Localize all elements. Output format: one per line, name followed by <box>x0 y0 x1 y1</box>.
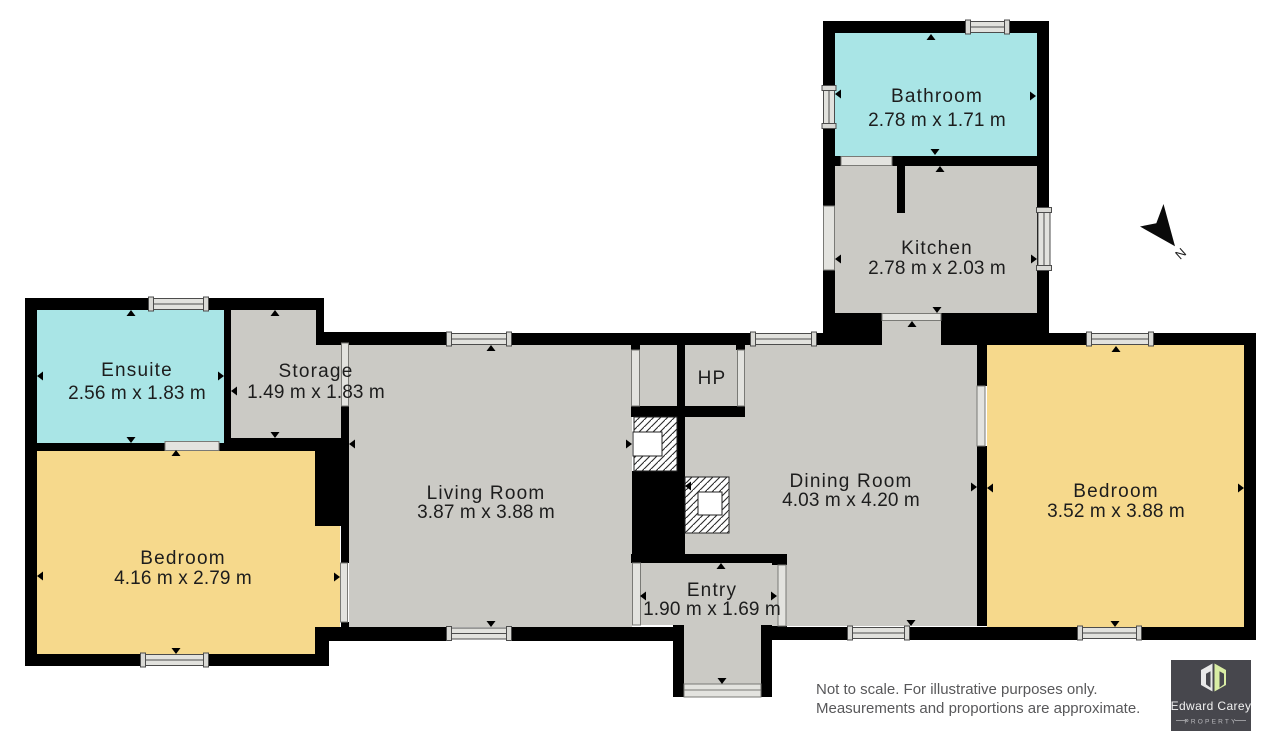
svg-text:Edward Carey: Edward Carey <box>1171 699 1252 713</box>
svg-text:Measurements and proportions a: Measurements and proportions are approxi… <box>816 700 1140 717</box>
svg-text:Bathroom: Bathroom <box>891 86 983 107</box>
svg-text:Not to scale. For illustrative: Not to scale. For illustrative purposes … <box>816 681 1098 698</box>
svg-text:Storage: Storage <box>279 361 354 382</box>
svg-text:Ensuite: Ensuite <box>101 360 173 381</box>
svg-text:3.87 m x 3.88 m: 3.87 m x 3.88 m <box>417 502 555 523</box>
svg-text:4.16 m x 2.79 m: 4.16 m x 2.79 m <box>114 568 252 589</box>
svg-text:3.52 m x 3.88 m: 3.52 m x 3.88 m <box>1047 501 1185 522</box>
svg-text:4.03 m x 4.20 m: 4.03 m x 4.20 m <box>782 490 920 511</box>
svg-text:2.56 m x 1.83 m: 2.56 m x 1.83 m <box>68 383 206 404</box>
svg-text:Kitchen: Kitchen <box>901 238 973 259</box>
svg-text:Entry: Entry <box>687 580 737 601</box>
svg-text:2.78 m x 2.03 m: 2.78 m x 2.03 m <box>868 258 1006 279</box>
svg-text:PROPERTY: PROPERTY <box>1184 719 1237 726</box>
svg-text:Bedroom: Bedroom <box>1073 481 1159 502</box>
svg-text:Dining Room: Dining Room <box>789 471 912 492</box>
svg-text:HP: HP <box>698 368 727 389</box>
svg-text:2.78 m x 1.71 m: 2.78 m x 1.71 m <box>868 110 1006 131</box>
svg-text:1.90 m x 1.69 m: 1.90 m x 1.69 m <box>643 599 781 620</box>
svg-text:Bedroom: Bedroom <box>140 548 226 569</box>
svg-text:Living Room: Living Room <box>427 483 546 504</box>
svg-text:1.49 m x 1.83 m: 1.49 m x 1.83 m <box>247 382 385 403</box>
